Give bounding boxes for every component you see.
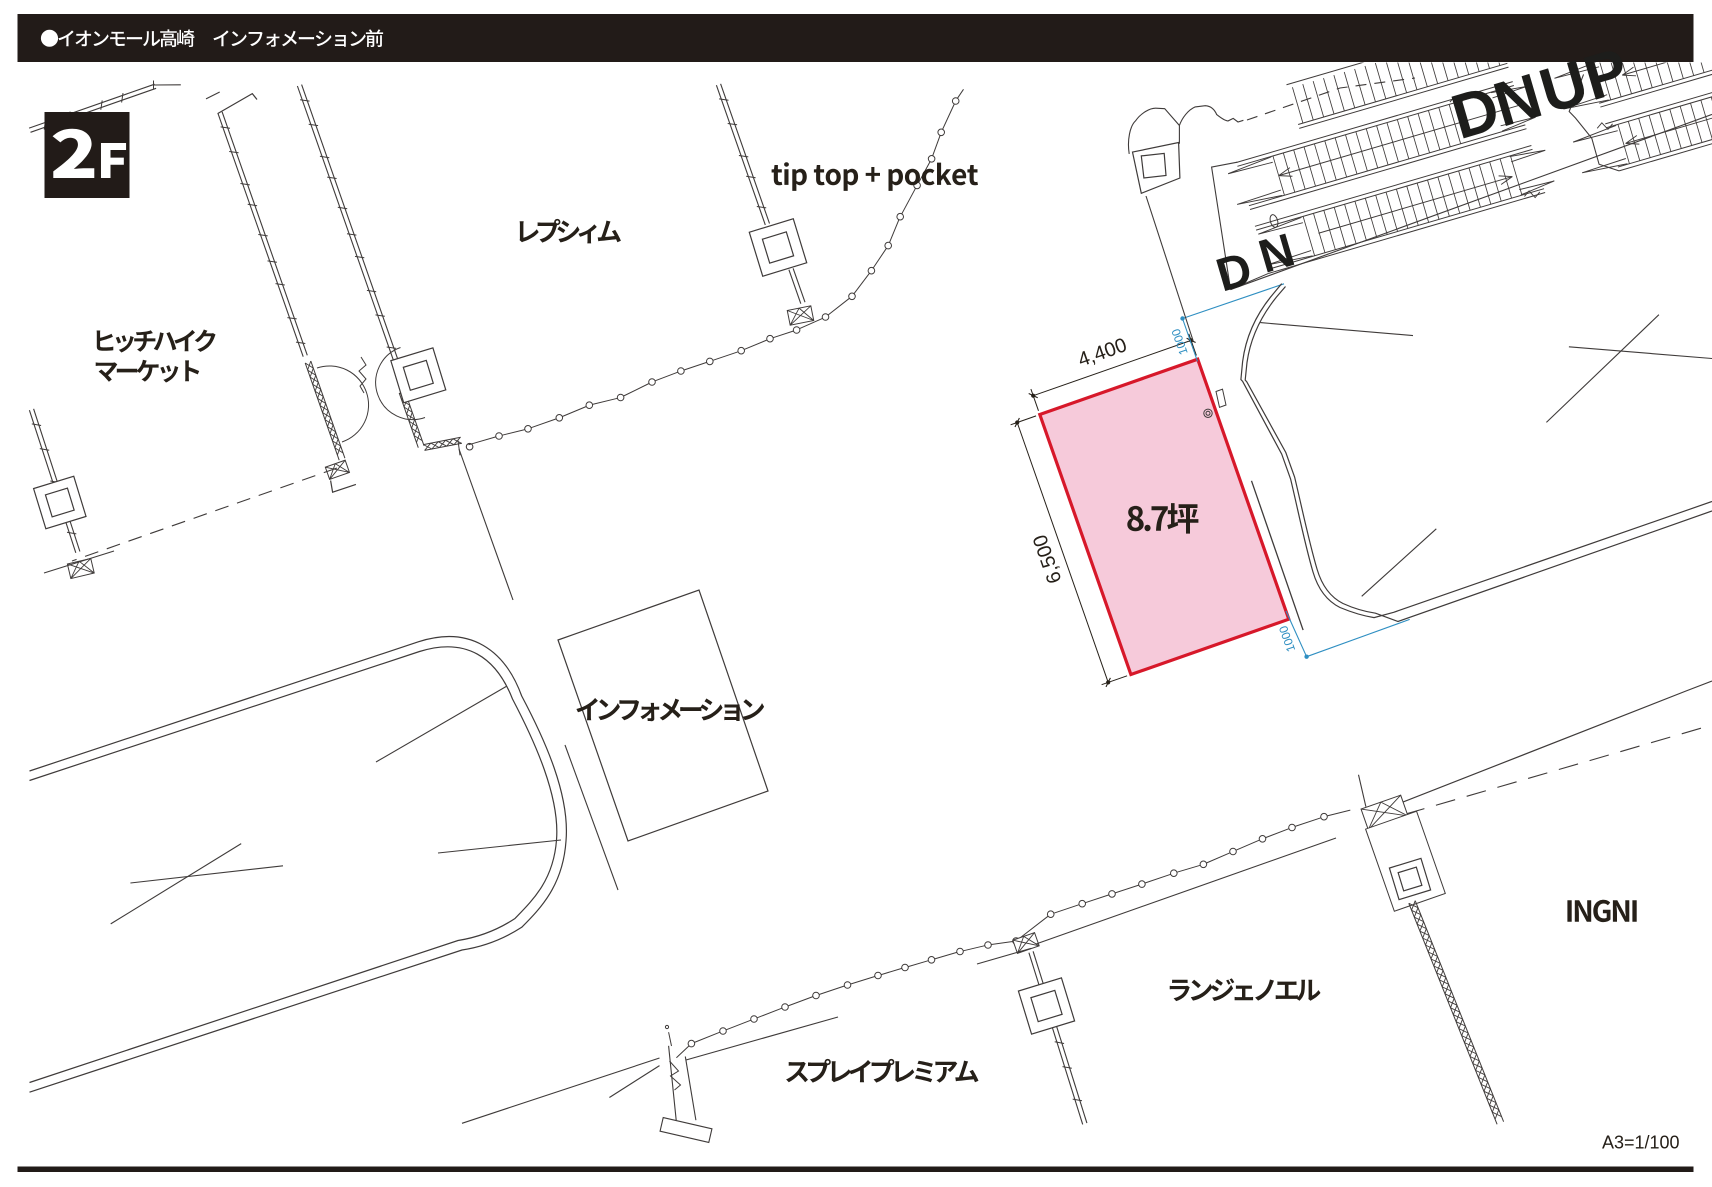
svg-text:A3=1/100: A3=1/100: [1602, 1133, 1680, 1153]
